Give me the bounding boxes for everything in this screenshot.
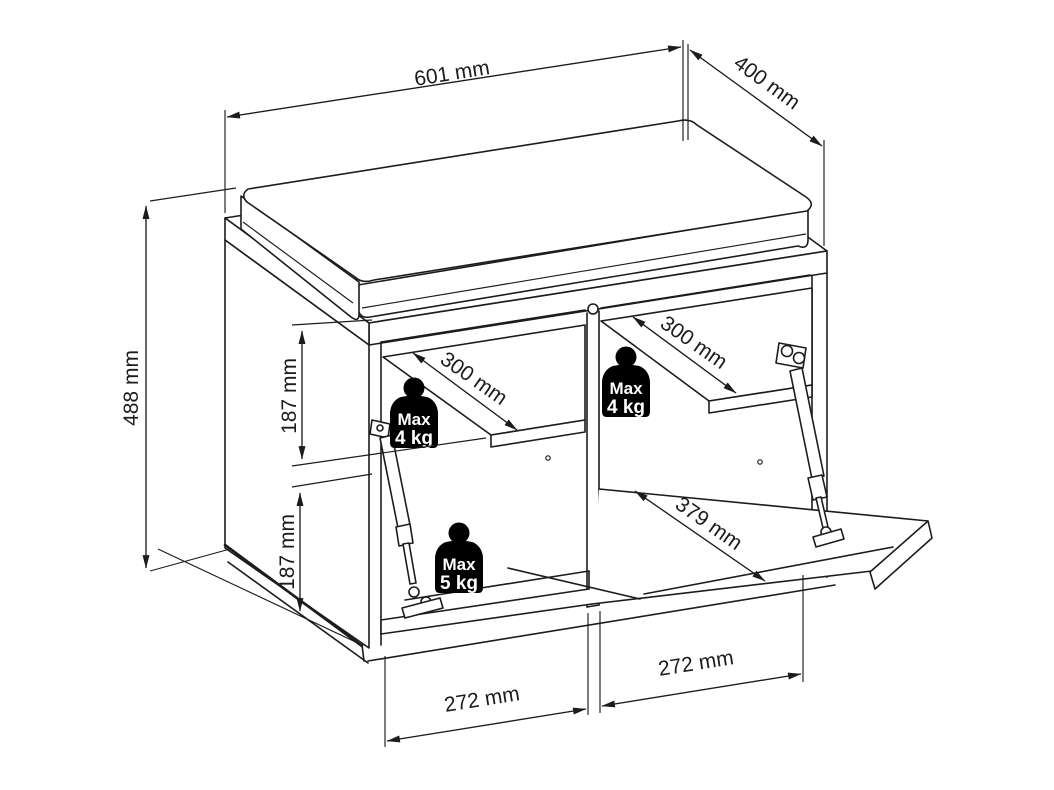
badge-load-label: 5 kg [440,573,478,594]
right-bay-label: 272 mm [657,646,736,681]
depth-label: 400 mm [729,51,804,114]
load-badge-right-shelf: Max 4 kg [602,347,650,419]
badge-max-label: Max [609,379,643,398]
badge-max-label: Max [397,410,431,429]
weight-figure-icon [616,347,637,368]
badge-max-label: Max [442,555,476,574]
left-bay-label: 272 mm [443,682,522,717]
lower-compartment-label: 187 mm [276,514,299,590]
cam-lock-hole [588,304,598,314]
dimension-left-bay: 272 mm [385,613,588,747]
dimension-height: 488 mm [120,188,236,571]
weight-figure-icon [404,378,425,399]
weight-figure-icon [449,523,470,544]
drawing-page: Max 4 kg Max 4 kg Max 5 kg 601 mm 400 mm… [0,0,1054,790]
width-label: 601 mm [413,56,492,91]
badge-load-label: 4 kg [395,428,433,449]
badge-load-label: 4 kg [607,397,645,418]
height-label: 488 mm [120,350,143,426]
upper-compartment-label: 187 mm [278,358,301,434]
load-badge-flap-door: Max 5 kg [435,523,483,595]
technical-drawing: Max 4 kg Max 4 kg Max 5 kg 601 mm 400 mm… [0,0,1054,790]
